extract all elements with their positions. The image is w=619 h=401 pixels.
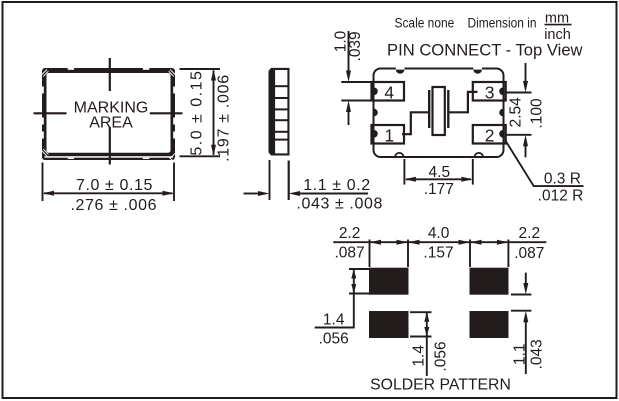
svg-text:.100: .100 — [529, 98, 546, 129]
svg-text:5.0 ± 0.15: 5.0 ± 0.15 — [189, 70, 206, 156]
svg-text:.039: .039 — [347, 31, 364, 61]
svg-text:.087: .087 — [514, 245, 544, 262]
svg-text:.087: .087 — [335, 245, 365, 262]
svg-text:4.0: 4.0 — [428, 225, 450, 242]
svg-text:Scale none Dimension in: Scale none Dimension in — [395, 16, 537, 31]
svg-text:0.3 R: 0.3 R — [544, 170, 581, 187]
svg-text:2.54: 2.54 — [508, 97, 525, 128]
svg-text:4: 4 — [384, 82, 394, 102]
svg-text:.043: .043 — [529, 339, 546, 369]
svg-text:4.5: 4.5 — [429, 164, 451, 181]
svg-text:SOLDER PATTERN: SOLDER PATTERN — [370, 376, 511, 393]
svg-text:PIN CONNECT - Top View: PIN CONNECT - Top View — [387, 41, 584, 60]
svg-text:AREA: AREA — [89, 114, 133, 131]
svg-text:1.1: 1.1 — [512, 344, 529, 366]
svg-text:7.0 ± 0.15: 7.0 ± 0.15 — [76, 177, 153, 194]
svg-text:.056: .056 — [433, 341, 450, 371]
svg-text:.012 R: .012 R — [538, 188, 584, 205]
svg-text:.276 ± .006: .276 ± .006 — [71, 197, 158, 214]
svg-text:1: 1 — [384, 125, 394, 145]
svg-text:.056: .056 — [319, 331, 349, 348]
svg-text:1.1 ± 0.2: 1.1 ± 0.2 — [303, 177, 371, 194]
svg-text:.157: .157 — [423, 245, 453, 262]
svg-text:3: 3 — [485, 82, 495, 102]
svg-text:.177: .177 — [424, 181, 454, 198]
svg-text:2: 2 — [485, 125, 495, 145]
svg-text:1.4: 1.4 — [323, 312, 345, 329]
svg-text:.197 ± .006: .197 ± .006 — [216, 74, 233, 162]
svg-text:1.4: 1.4 — [411, 345, 428, 367]
svg-text:2.2: 2.2 — [519, 225, 541, 242]
svg-text:2.2: 2.2 — [339, 225, 361, 242]
svg-text:.043 ± .008: .043 ± .008 — [296, 196, 383, 213]
